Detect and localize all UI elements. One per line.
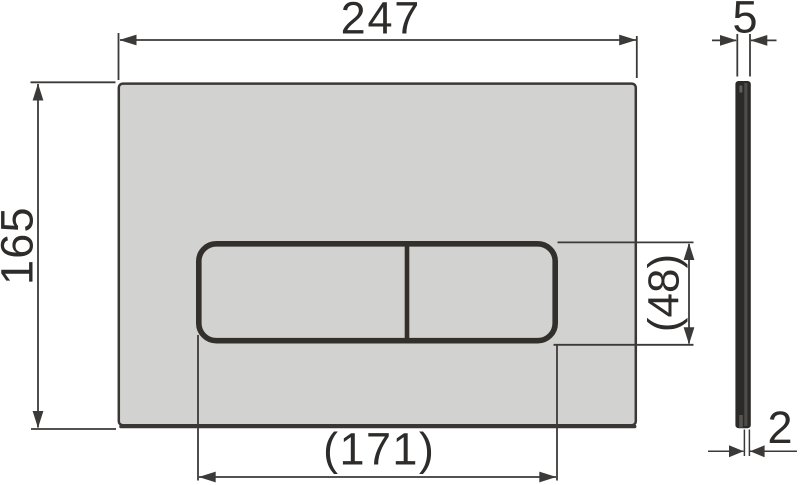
- svg-text:247: 247: [341, 0, 421, 43]
- svg-text:(48): (48): [640, 254, 689, 332]
- svg-text:2: 2: [767, 402, 792, 453]
- svg-text:5: 5: [732, 0, 757, 42]
- svg-text:(171): (171): [323, 424, 435, 475]
- svg-text:165: 165: [0, 206, 43, 285]
